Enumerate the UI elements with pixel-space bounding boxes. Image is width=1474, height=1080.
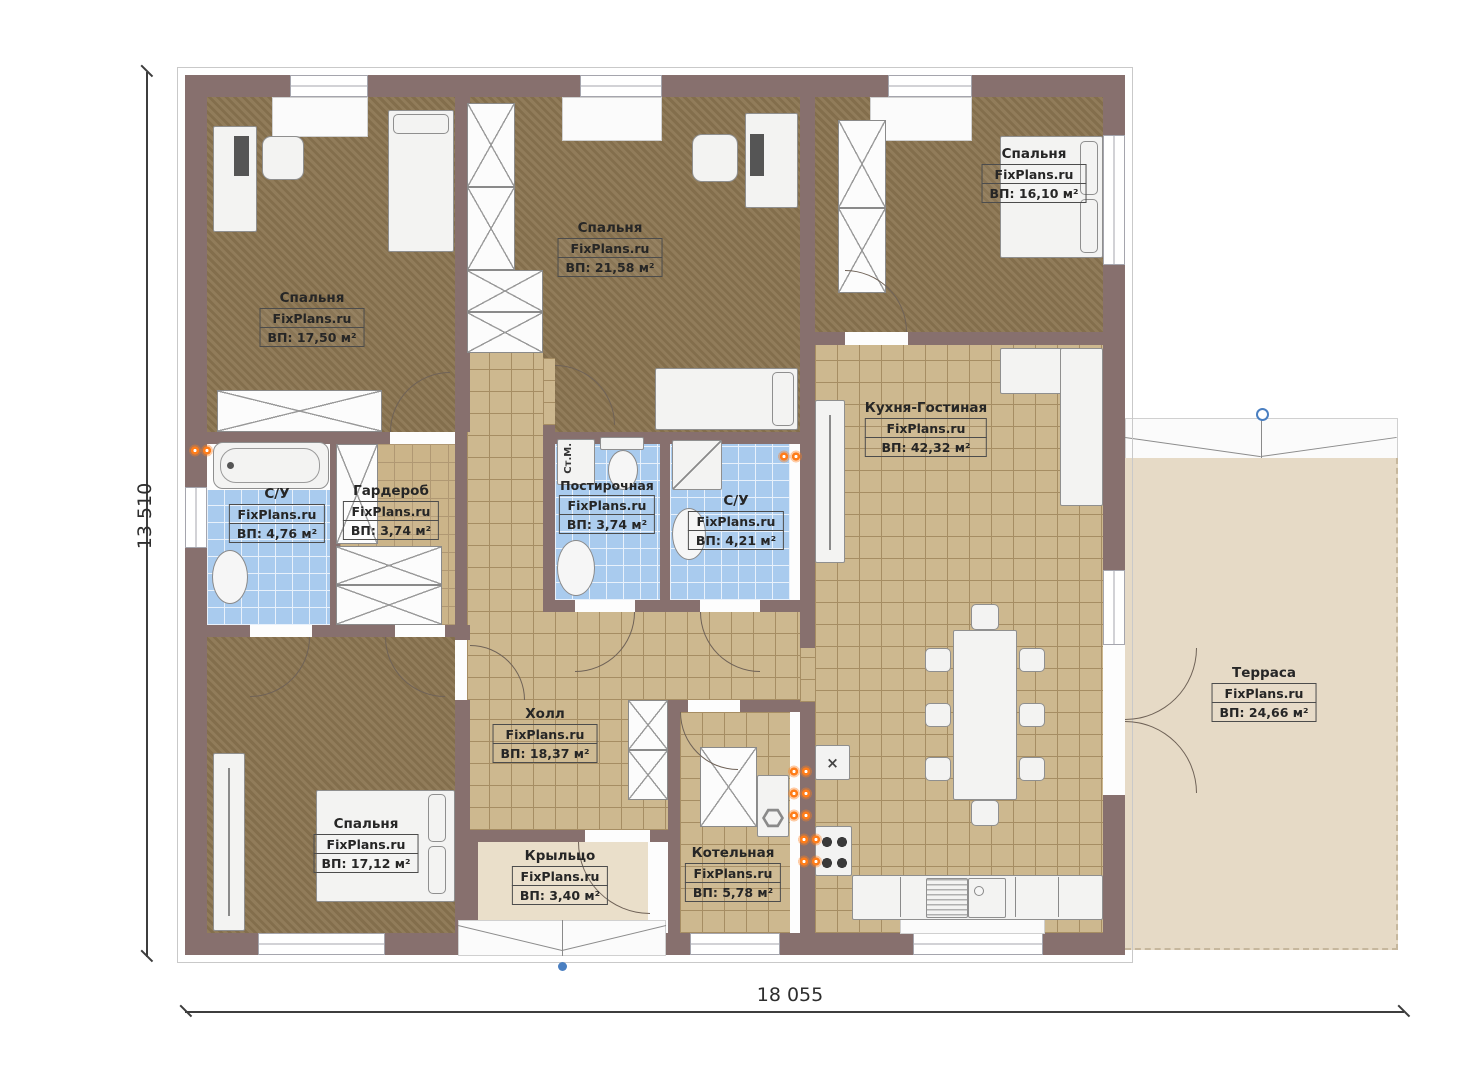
closet: [838, 120, 886, 208]
wall: [660, 437, 670, 600]
room-area: ВП: 18,37 м²: [493, 743, 598, 763]
room-name: Спальня: [260, 290, 365, 306]
dimension-line-bottom: [185, 1011, 1404, 1013]
room-area: ВП: 21,58 м²: [558, 257, 663, 277]
closet: [628, 700, 668, 750]
closet: [336, 585, 442, 625]
wall: [740, 700, 800, 712]
porch-axis: [562, 920, 563, 956]
chair: [262, 136, 304, 180]
room-label-bath-1: С/У FixPlans.ru ВП: 4,76 м²: [229, 486, 325, 543]
dimension-label-left: 13 510: [134, 471, 156, 561]
wall: [478, 830, 585, 842]
chair: [925, 648, 951, 672]
window: [913, 933, 1043, 955]
radiator-icon: [777, 450, 803, 463]
shower: [672, 440, 722, 490]
dining-table: [953, 630, 1017, 800]
bathtub-inner: [220, 448, 320, 483]
room-name: Крыльцо: [512, 848, 608, 864]
axis-marker: [558, 962, 567, 971]
room-area: ВП: 42,32 м²: [865, 437, 987, 457]
chair: [1019, 648, 1045, 672]
room-name: Спальня: [982, 146, 1087, 162]
room-name: Котельная: [685, 845, 781, 861]
closet: [336, 546, 442, 585]
room-label-bedroom-4: Спальня FixPlans.ru ВП: 17,12 м²: [314, 816, 419, 873]
room-label-bedroom-1: Спальня FixPlans.ru ВП: 17,50 м²: [260, 290, 365, 347]
room-area: ВП: 17,50 м²: [260, 327, 365, 347]
room-brand: FixPlans.ru: [343, 501, 439, 521]
chair: [925, 757, 951, 781]
closet: [467, 187, 515, 270]
window-niche: [562, 97, 662, 141]
window-line: [228, 768, 230, 916]
wall: [455, 432, 467, 625]
room-brand: FixPlans.ru: [260, 308, 365, 328]
room-name: Терраса: [1212, 665, 1317, 681]
room-brand: FixPlans.ru: [865, 418, 987, 438]
faucet: [227, 462, 234, 469]
counter-divider: [1058, 877, 1059, 917]
closet: [467, 270, 543, 312]
chair: [971, 604, 999, 630]
window: [580, 75, 662, 97]
window: [258, 933, 385, 955]
room-brand: FixPlans.ru: [685, 863, 781, 883]
boiler-counter: [757, 775, 789, 837]
room-area: ВП: 3,40 м²: [512, 885, 608, 905]
window: [1103, 135, 1125, 265]
wall: [760, 600, 800, 612]
pillow: [428, 846, 446, 894]
room-area: ВП: 3,74 м²: [343, 520, 439, 540]
room-brand: FixPlans.ru: [558, 238, 663, 258]
wall: [543, 425, 555, 600]
radiator-icon: [797, 833, 823, 846]
dimension-label-bottom: 18 055: [710, 984, 870, 1006]
door-opening: [845, 332, 908, 345]
room-brand: FixPlans.ru: [314, 834, 419, 854]
kitchen-sink: [968, 878, 1006, 918]
room-name: С/У: [688, 493, 784, 509]
floor-plan-canvas: 13 510 18 055: [0, 0, 1474, 1080]
chair: [971, 800, 999, 826]
room-brand: FixPlans.ru: [512, 866, 608, 886]
wall: [312, 625, 395, 637]
room-label-bedroom-2: Спальня FixPlans.ru ВП: 21,58 м²: [558, 220, 663, 277]
sink: [557, 540, 595, 596]
toilet-tank: [600, 437, 644, 450]
extractor-icon: ×: [815, 745, 850, 780]
sofa: [1060, 348, 1103, 506]
pillow: [393, 114, 449, 134]
floor-corridor-door: [543, 358, 555, 425]
room-name: Кухня-Гостиная: [865, 400, 987, 416]
room-name: Спальня: [314, 816, 419, 832]
room-brand: FixPlans.ru: [559, 495, 655, 515]
wall: [650, 830, 668, 842]
room-label-laundry: Постирочная FixPlans.ru ВП: 3,74 м²: [559, 478, 655, 534]
room-name: С/У: [229, 486, 325, 502]
closet: [628, 750, 668, 800]
room-area: ВП: 4,76 м²: [229, 523, 325, 543]
radiator-icon: [797, 855, 823, 868]
cabinet-line: [829, 415, 831, 550]
window-niche: [272, 97, 368, 137]
pillow: [428, 794, 446, 842]
room-brand: FixPlans.ru: [229, 504, 325, 524]
room-brand: FixPlans.ru: [688, 511, 784, 531]
radiator-icon: [787, 765, 813, 778]
sink-drainer: [926, 878, 968, 918]
closet: [467, 103, 515, 187]
pillow: [1080, 199, 1098, 253]
room-label-wardrobe: Гардероб FixPlans.ru ВП: 3,74 м²: [343, 483, 439, 540]
chair: [925, 703, 951, 727]
wall: [908, 332, 1103, 345]
kitchen-sink-bowl: [974, 886, 984, 896]
terrace-door-opening: [1103, 645, 1125, 795]
washing-machine-label: Ст.М.: [563, 443, 574, 474]
room-name: Гардероб: [343, 483, 439, 499]
window: [690, 933, 780, 955]
room-label-kitchen-living: Кухня-Гостиная FixPlans.ru ВП: 42,32 м²: [865, 400, 987, 457]
wall: [815, 332, 845, 345]
pillow: [772, 372, 794, 426]
room-area: ВП: 24,66 м²: [1212, 702, 1317, 722]
window: [290, 75, 368, 97]
window: [185, 487, 207, 548]
window-niche: [900, 918, 1045, 934]
room-area: ВП: 5,78 м²: [685, 882, 781, 902]
chair: [692, 134, 738, 182]
floor-corridor: [467, 353, 543, 612]
room-label-bedroom-3: Спальня FixPlans.ru ВП: 16,10 м²: [982, 146, 1087, 203]
axis-marker: [1256, 408, 1269, 421]
room-label-porch: Крыльцо FixPlans.ru ВП: 3,40 м²: [512, 848, 608, 905]
room-name: Холл: [493, 706, 598, 722]
counter-divider: [900, 877, 901, 917]
room-label-hall: Холл FixPlans.ru ВП: 18,37 м²: [493, 706, 598, 763]
closet: [467, 312, 543, 353]
room-label-terrace: Терраса FixPlans.ru ВП: 24,66 м²: [1212, 665, 1317, 722]
monitor: [234, 136, 249, 176]
wall: [668, 700, 680, 955]
radiator-icon: [787, 787, 813, 800]
room-brand: FixPlans.ru: [1212, 683, 1317, 703]
room-brand: FixPlans.ru: [493, 724, 598, 744]
room-name: Постирочная: [559, 478, 655, 493]
wall: [635, 600, 700, 612]
room-label-bath-2: С/У FixPlans.ru ВП: 4,21 м²: [688, 493, 784, 550]
wall: [680, 700, 688, 712]
wall: [543, 600, 575, 612]
room-area: ВП: 16,10 м²: [982, 183, 1087, 203]
chair: [1019, 703, 1045, 727]
sink: [212, 550, 248, 604]
room-area: ВП: 4,21 м²: [688, 530, 784, 550]
radiator-icon: [188, 444, 214, 457]
floor-hall-kitchen-passage: [800, 648, 815, 702]
room-name: Спальня: [558, 220, 663, 236]
wall: [800, 97, 815, 648]
wall: [445, 625, 455, 637]
room-brand: FixPlans.ru: [982, 164, 1087, 184]
wall: [455, 625, 470, 640]
porch-door-threshold: [585, 830, 650, 842]
counter-divider: [1015, 877, 1016, 917]
monitor: [750, 134, 764, 176]
chair: [1019, 757, 1045, 781]
room-label-boiler: Котельная FixPlans.ru ВП: 5,78 м²: [685, 845, 781, 902]
window: [1103, 570, 1125, 645]
radiator-icon: [787, 809, 813, 822]
window: [888, 75, 972, 97]
wall: [207, 625, 250, 637]
wardrobe-cabinet: [217, 390, 382, 432]
room-area: ВП: 3,74 м²: [559, 514, 655, 534]
room-area: ВП: 17,12 м²: [314, 853, 419, 873]
